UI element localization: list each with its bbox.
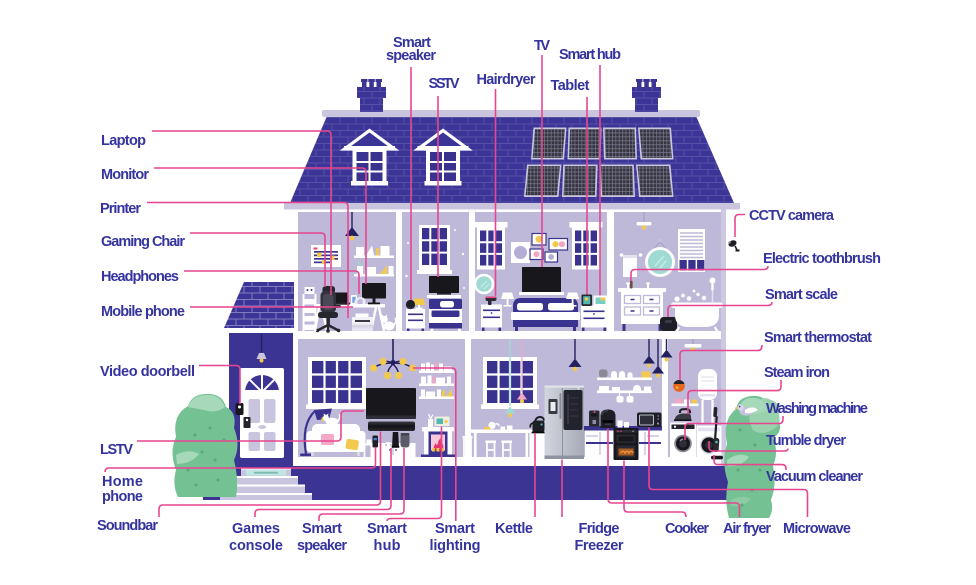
svg-text:Smart: Smart [302,521,342,537]
svg-text:Freezer: Freezer [575,538,624,554]
svg-text:Gaming Chair: Gaming Chair [101,234,185,250]
svg-text:Kettle: Kettle [495,521,533,537]
svg-text:Laptop: Laptop [101,133,146,149]
svg-text:Smart hub: Smart hub [559,47,621,63]
svg-text:Microwave: Microwave [783,521,851,537]
svg-text:Tumble dryer: Tumble dryer [766,433,846,449]
svg-text:Video doorbell: Video doorbell [100,364,195,380]
svg-text:speaker: speaker [386,48,436,64]
svg-text:Soundbar: Soundbar [97,518,158,534]
svg-text:Printer: Printer [100,201,141,217]
svg-text:Tablet: Tablet [551,78,590,94]
svg-text:Hairdryer: Hairdryer [477,72,536,88]
svg-text:phone: phone [102,489,143,505]
svg-text:Air fryer: Air fryer [723,521,771,537]
svg-text:Monitor: Monitor [101,167,149,183]
svg-text:Smart thermostat: Smart thermostat [764,330,872,346]
svg-text:hub: hub [374,538,401,554]
svg-text:CCTV camera: CCTV camera [749,208,835,224]
svg-text:Games: Games [232,521,280,537]
svg-text:console: console [229,538,283,554]
svg-text:Cooker: Cooker [665,521,709,537]
svg-text:LSTV: LSTV [100,442,133,458]
svg-text:Fridge: Fridge [579,521,620,537]
svg-text:Steam iron: Steam iron [764,365,830,381]
svg-text:lighting: lighting [430,538,481,554]
svg-text:TV: TV [534,38,550,54]
svg-text:Smart: Smart [435,521,475,537]
svg-text:Smart: Smart [367,521,407,537]
svg-text:Smart scale: Smart scale [765,287,838,303]
svg-text:Headphones: Headphones [101,269,179,285]
svg-text:Vacuum cleaner: Vacuum cleaner [766,469,863,485]
svg-text:speaker: speaker [297,538,347,554]
svg-text:Electric toothbrush: Electric toothbrush [763,251,881,267]
svg-text:SSTV: SSTV [429,76,460,92]
svg-text:Mobile phone: Mobile phone [101,304,185,320]
svg-text:Home: Home [102,474,143,490]
svg-text:Washing machine: Washing machine [766,401,868,417]
